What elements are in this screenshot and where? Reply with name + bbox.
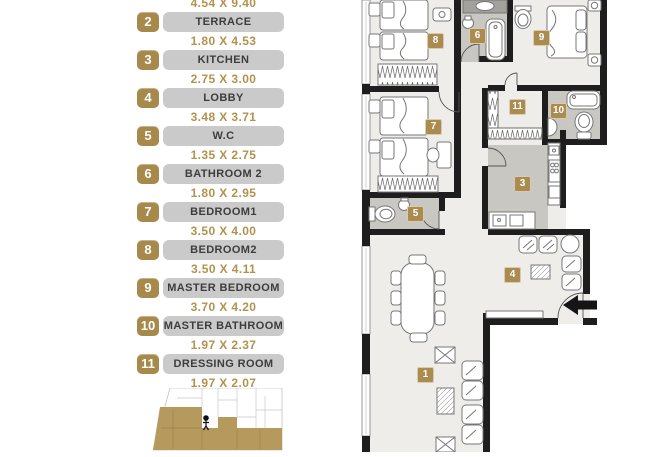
plan-badge-dressing: 11 (509, 99, 526, 115)
legend-room-pill: BEDROOM1 (163, 202, 284, 222)
legend-badge: 5 (137, 126, 159, 146)
legend-room-pill: BATHROOM 2 (163, 164, 284, 184)
legend-room-pill: KITCHEN (163, 50, 284, 70)
legend-dimension: 4.54 X 9.40 (163, 0, 284, 10)
legend-row: 7 BEDROOM1 3.50 X 4.00 (137, 202, 287, 240)
legend-room-pill: W.C (163, 126, 284, 146)
legend-dimension: 1.97 X 2.37 (163, 338, 284, 352)
legend-room-label: W.C (213, 130, 235, 142)
legend-row: 4 LOBBY 3.48 X 3.71 (137, 88, 287, 126)
legend-badge: 8 (137, 240, 159, 260)
legend-room-label: MASTER BEDROOM (167, 282, 280, 294)
plan-badge-master-bathroom: 10 (550, 103, 567, 119)
legend-dimension: 3.50 X 4.11 (163, 262, 284, 276)
legend-row: 9 MASTER BEDROOM 3.70 X 4.20 (137, 278, 287, 316)
legend-row: 8 BEDROOM2 3.50 X 4.11 (137, 240, 287, 278)
plan-badge-lobby: 4 (504, 267, 521, 283)
plan-badge-kitchen: 3 (514, 176, 531, 192)
legend-room-label: KITCHEN (198, 54, 250, 66)
floor-plan: 1 3 4 5 6 7 8 9 10 11 (355, 0, 610, 452)
legend-dimension: 3.50 X 4.00 (163, 224, 284, 238)
legend-dimension: 2.75 X 3.00 (163, 72, 284, 86)
legend-badge: 7 (137, 202, 159, 222)
legend-room-pill: MASTER BATHROOM (163, 316, 284, 336)
legend-dimension: 1.35 X 2.75 (163, 148, 284, 162)
legend-room-pill: BEDROOM2 (163, 240, 284, 260)
legend-room-label: BATHROOM 2 (185, 168, 262, 180)
legend-row: 5 W.C 1.35 X 2.75 (137, 126, 287, 164)
legend-row: 6 BATHROOM 2 1.80 X 2.95 (137, 164, 287, 202)
legend-row: 3 KITCHEN 2.75 X 3.00 (137, 50, 287, 88)
legend-room-pill: TERRACE (163, 12, 284, 32)
legend-room-label: BEDROOM2 (190, 244, 257, 256)
plan-badge-wc: 5 (407, 206, 424, 222)
plan-badge-living: 1 (417, 367, 434, 383)
legend-badge: 2 (137, 12, 159, 32)
legend-room-pill: MASTER BEDROOM (163, 278, 284, 298)
legend-dimension: 1.80 X 2.95 (163, 186, 284, 200)
legend-row: 11 DRESSING ROOM 1.97 X 2.07 (137, 354, 287, 392)
legend-row: 10 MASTER BATHROOM 1.97 X 2.37 (137, 316, 287, 354)
plan-badge-bedroom2: 8 (427, 33, 444, 49)
legend-dimension: 3.70 X 4.20 (163, 300, 284, 314)
room-legend: 4.54 X 9.40 2 TERRACE 1.80 X 4.53 3 KITC… (137, 0, 287, 400)
legend-room-label: BEDROOM1 (190, 206, 257, 218)
plan-badge-master-bedroom: 9 (533, 30, 550, 46)
legend-badge: 3 (137, 50, 159, 70)
legend-dimension: 1.80 X 4.53 (163, 34, 284, 48)
plan-badge-bedroom1: 7 (425, 119, 442, 135)
legend-badge: 11 (137, 354, 159, 374)
legend-row: 2 TERRACE 1.80 X 4.53 (137, 12, 287, 50)
key-plan-minimap (153, 388, 283, 452)
legend-room-pill: LOBBY (163, 88, 284, 108)
legend-badge: 9 (137, 278, 159, 298)
legend-badge: 4 (137, 88, 159, 108)
legend-room-label: LOBBY (203, 92, 244, 104)
legend-room-label: MASTER BATHROOM (164, 320, 283, 332)
legend-badge: 6 (137, 164, 159, 184)
key-plan-svg (153, 388, 283, 452)
legend-room-pill: DRESSING ROOM (163, 354, 284, 374)
legend-room-label: TERRACE (196, 16, 252, 28)
legend-dimension: 3.48 X 3.71 (163, 110, 284, 124)
legend-badge: 10 (137, 316, 159, 336)
floor-plan-svg (355, 0, 610, 452)
legend-room-label: DRESSING ROOM (174, 358, 274, 370)
plan-badge-bathroom2: 6 (469, 28, 486, 44)
